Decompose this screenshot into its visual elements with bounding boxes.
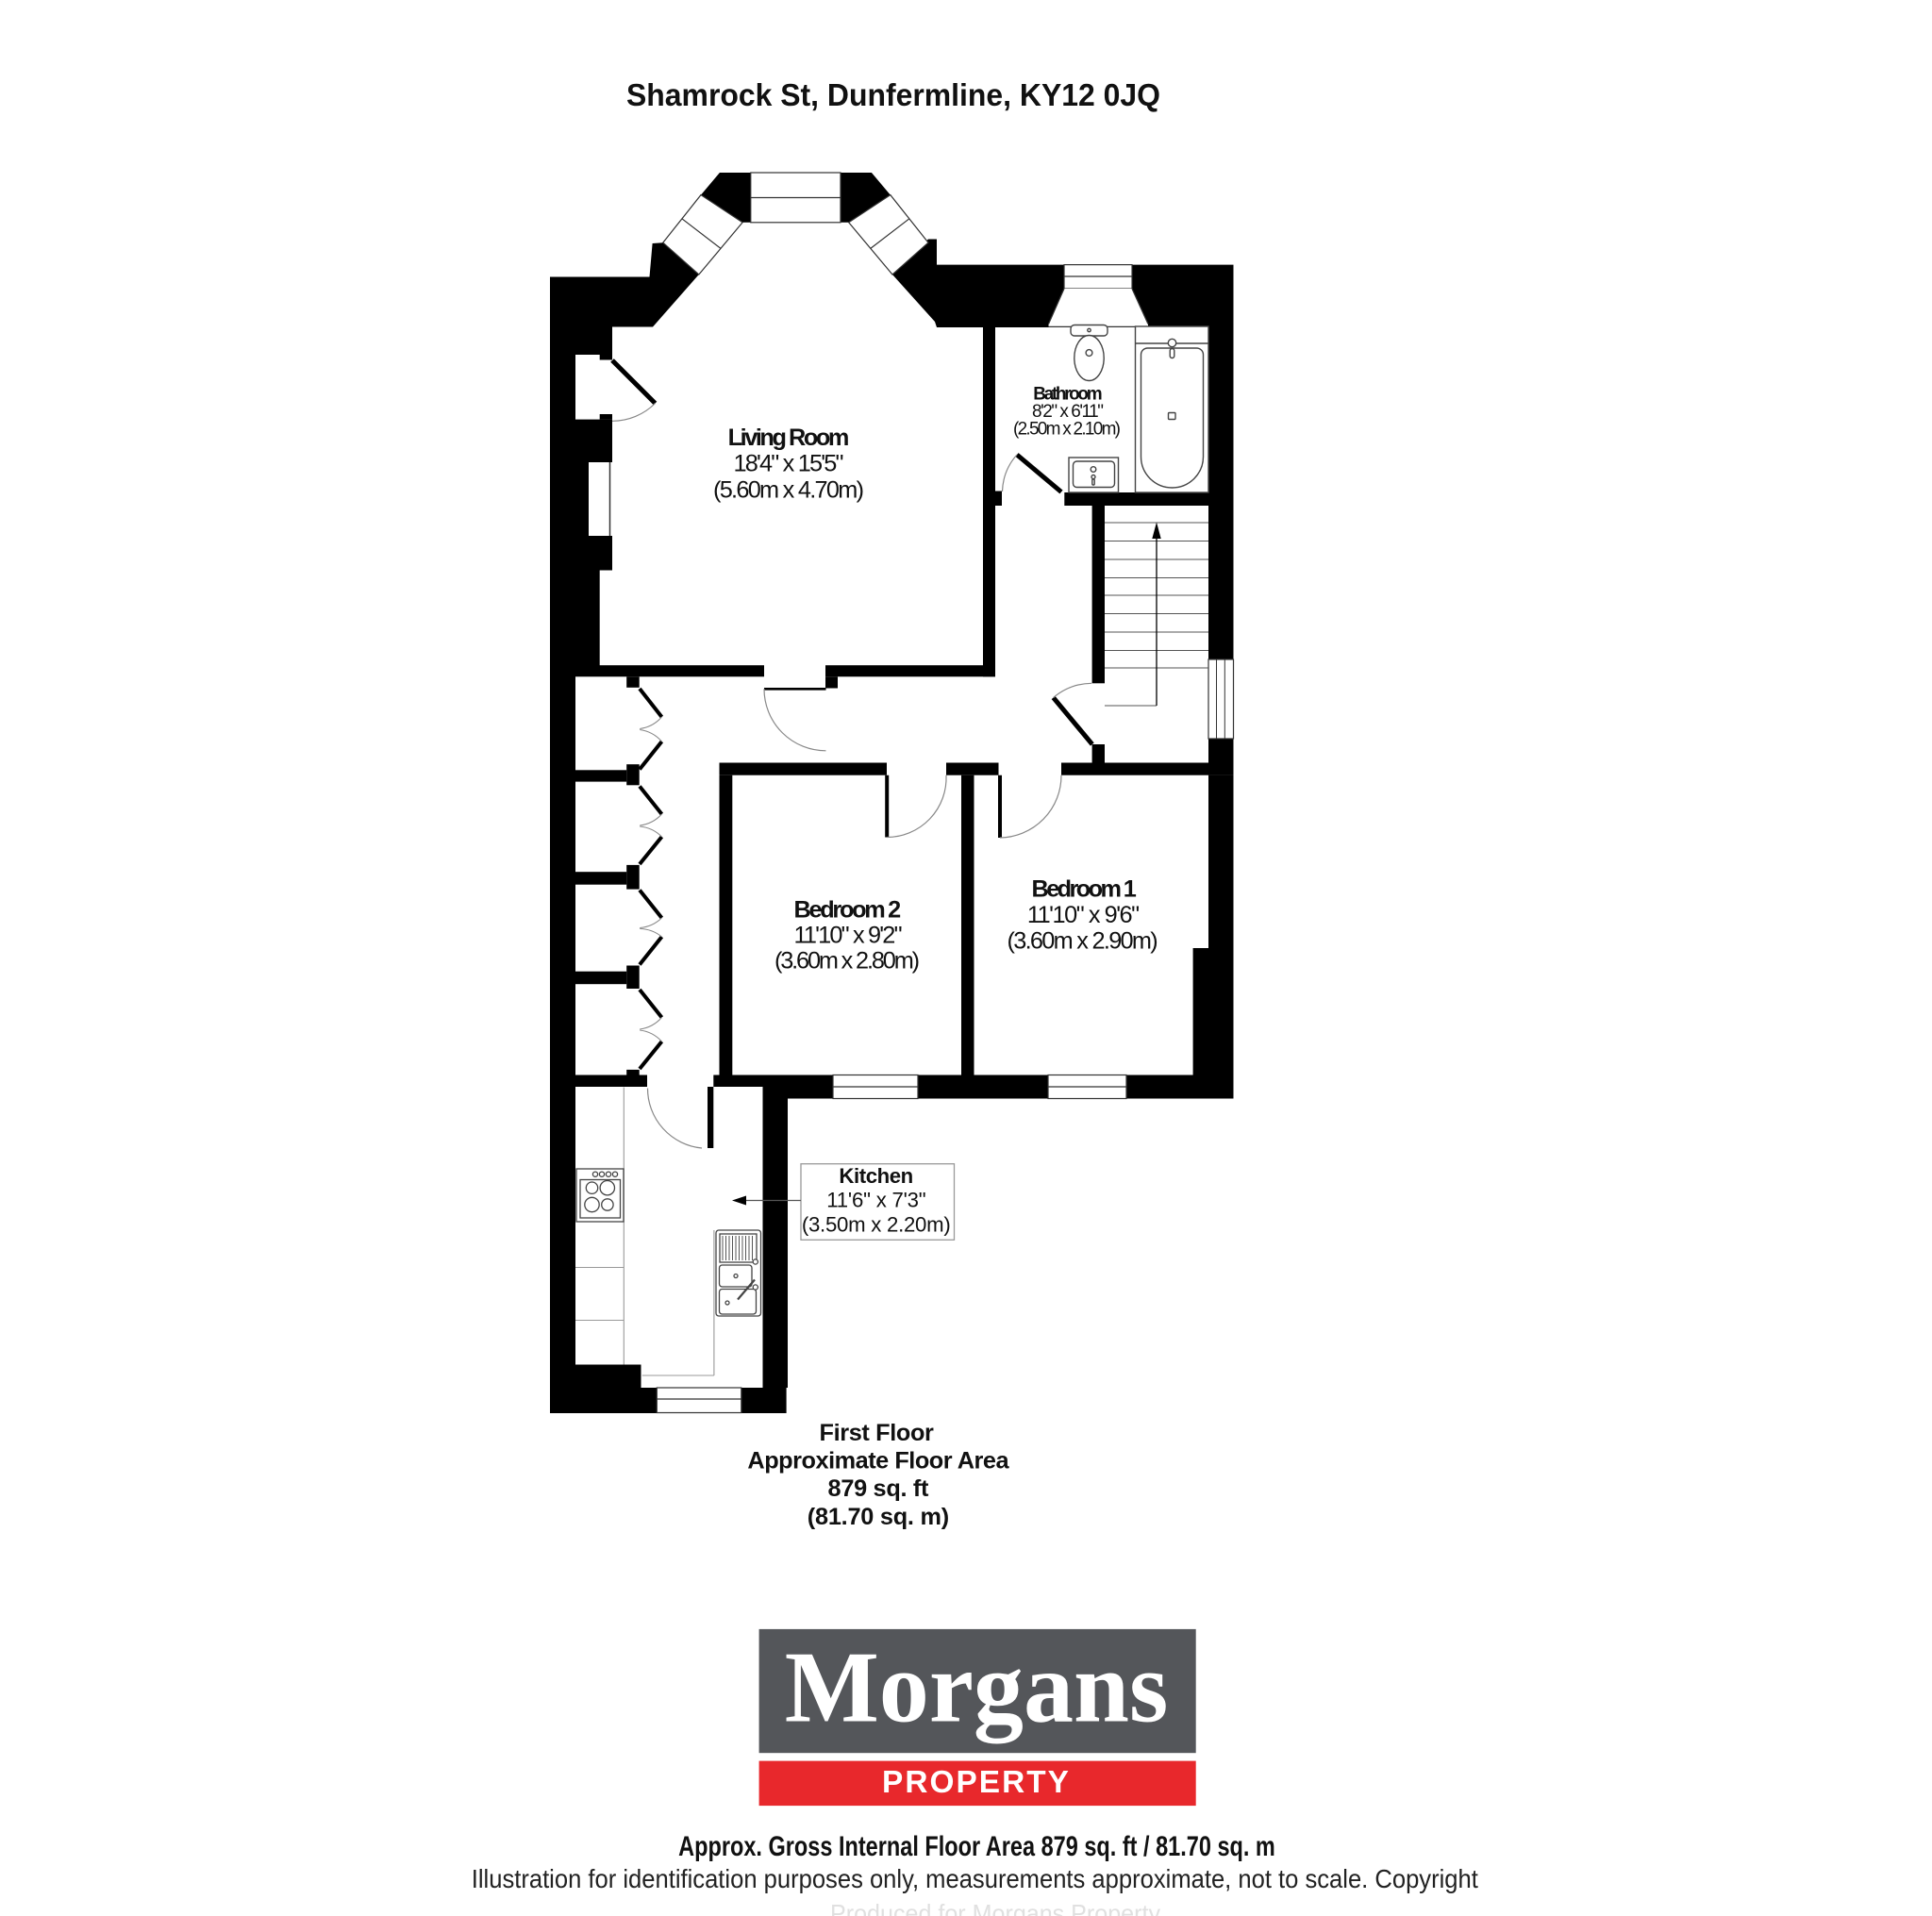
- svg-text:879 sq. ft: 879 sq. ft: [828, 1475, 929, 1502]
- svg-text:11'10" x 9'6": 11'10" x 9'6": [1027, 902, 1140, 928]
- svg-text:(3.60m x 2.80m): (3.60m x 2.80m): [774, 947, 920, 974]
- svg-text:Produced for Morgans Property: Produced for Morgans Property: [830, 1899, 1160, 1916]
- svg-text:11'6" x 7'3": 11'6" x 7'3": [826, 1188, 925, 1211]
- svg-text:First Floor: First Floor: [820, 1420, 935, 1446]
- svg-text:Living Room: Living Room: [728, 425, 850, 451]
- svg-text:11'10" x 9'2": 11'10" x 9'2": [793, 922, 902, 948]
- svg-text:Bedroom 1: Bedroom 1: [1032, 876, 1137, 903]
- svg-text:Bedroom 2: Bedroom 2: [794, 897, 902, 924]
- svg-text:(3.50m x 2.20m): (3.50m x 2.20m): [802, 1213, 951, 1237]
- svg-text:PROPERTY: PROPERTY: [882, 1764, 1071, 1799]
- svg-text:(81.70 sq. m): (81.70 sq. m): [808, 1504, 949, 1530]
- svg-text:Illustration for identificatio: Illustration for identification purposes…: [472, 1864, 1478, 1893]
- svg-text:Morgans: Morgans: [785, 1632, 1169, 1744]
- svg-text:(2.50m x 2.10m): (2.50m x 2.10m): [1013, 420, 1121, 440]
- svg-text:Approximate Floor Area: Approximate Floor Area: [747, 1447, 1009, 1474]
- svg-text:(3.60m x 2.90m): (3.60m x 2.90m): [1008, 927, 1158, 954]
- svg-text:Approx. Gross Internal Floor A: Approx. Gross Internal Floor Area 879 sq…: [678, 1831, 1275, 1862]
- svg-text:Shamrock St, Dunfermline, KY12: Shamrock St, Dunfermline, KY12 0JQ: [626, 78, 1160, 113]
- svg-text:(5.60m x 4.70m): (5.60m x 4.70m): [713, 477, 864, 504]
- svg-text:18'4" x 15'5": 18'4" x 15'5": [734, 451, 844, 477]
- svg-text:Kitchen: Kitchen: [839, 1164, 913, 1188]
